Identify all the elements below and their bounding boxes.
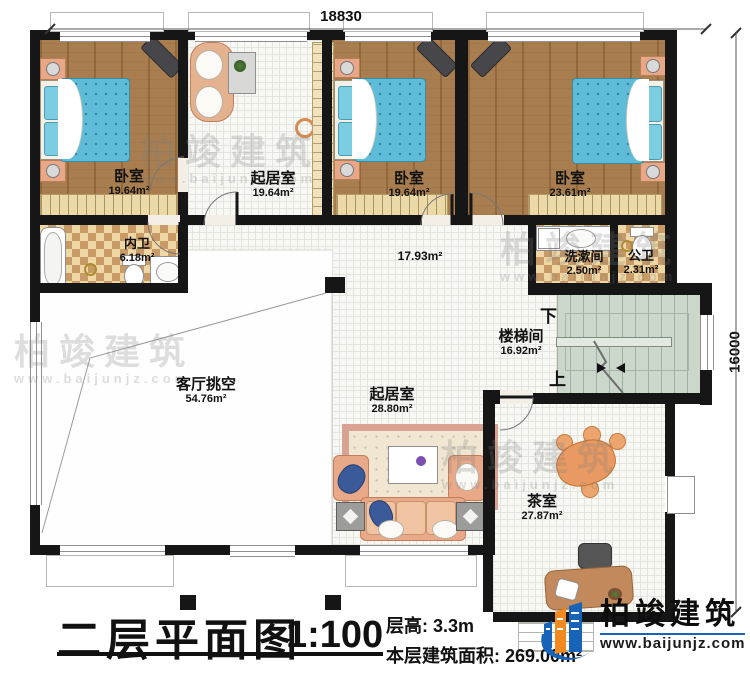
settee-cushion [195,86,223,118]
room-name: 卧室 [389,170,430,187]
room-name: 卧室 [550,170,591,187]
stair-handrail [556,337,672,347]
room-name: 洗漱间 [564,250,603,265]
room-area: 6.18m² [120,252,155,265]
room-area: 2.31m² [624,264,659,277]
door-opening [148,215,180,225]
room-name: 起居室 [250,170,295,187]
room-name: 茶室 [522,493,563,510]
room-name: 卧室 [109,168,150,185]
logo-bar-left [544,621,552,650]
wall-stair-top [528,283,712,295]
logo-bar-mid [555,608,566,654]
floor-height-label: 层高: 3.3m [386,612,474,638]
shower-head [84,263,97,276]
balcony-outline [345,555,477,587]
wall-tea-right-b [665,512,675,612]
wall-left [30,30,40,322]
room-area: 54.76m² [176,393,236,406]
wall-br2-br3 [455,40,468,215]
desk [228,52,256,94]
room-name: 公卫 [624,249,659,264]
room-area: 19.64m² [250,187,295,200]
coffee-table [388,446,438,484]
settee-cushion [195,50,223,80]
nightstand [40,58,66,80]
wall-tea-right-a [665,402,675,476]
brand-name: 柏竣建筑 [600,600,745,630]
coffee-table-decor [416,456,426,466]
door-opening [422,215,452,225]
wall-stair-bottom [533,393,712,404]
eave-outline [486,12,644,32]
room-label-tearoom: 茶室 27.87m² [522,493,563,523]
dimension-width: 18830 [320,8,362,25]
door-opening [472,215,504,225]
wall-tea-left [483,390,495,555]
stair-down-label: 下 [540,302,557,327]
wall-washroom-left [528,225,536,283]
room-label-washroom: 洗漱间 2.50m² [564,250,603,278]
wall-tea-left-low [483,555,493,612]
drawing-title: 二层平面图 [57,604,302,668]
column-void-corner [325,277,345,293]
nightstand [640,162,666,182]
wash-sink [566,229,596,248]
wall-br1-lr-low [178,192,188,215]
washing-machine [538,228,560,249]
room-area: 19.64m² [109,185,150,198]
wardrobe [528,194,662,217]
bathtub-basin [44,232,62,286]
wall-right-outer [665,30,677,292]
dimension-height: 16000 [727,331,744,373]
wall-lr-br2 [322,40,332,215]
desk-chair [578,543,612,569]
room-area: 19.64m² [389,187,430,200]
corridor-strip [185,225,332,250]
sofa-pillow [432,520,458,539]
side-table [456,502,485,531]
eave-outline [50,12,164,32]
wall-row1-bottom [30,215,677,225]
nightstand [40,160,66,182]
room-label-innerbath: 内卫 6.18m² [120,237,155,265]
room-name: 起居室 [369,386,414,403]
porch-column [325,595,341,610]
room-name: 客厅挑空 [176,376,236,393]
room-label-bedroom1: 卧室 19.64m² [109,168,150,198]
brand-website: www.baijunjz.com [600,633,745,652]
logo-bar-right [569,602,582,652]
room-label-sitting-bottom: 起居室 28.80m² [369,386,414,416]
wall-washroom-divider [610,225,618,283]
room-area: 17.93m² [398,250,443,264]
room-label-bedroom2: 卧室 19.64m² [389,170,430,200]
eave-outline [188,12,310,32]
floorplan-canvas: 柏竣建筑 www.baijunjz.com 柏竣建筑 www.baijunjz.… [0,0,750,675]
room-area: 28.80m² [369,403,414,416]
room-label-publicbath: 公卫 2.31m² [624,249,659,277]
room-area: 2.50m² [564,265,603,278]
wall-br1-lr [178,40,188,160]
room-label-sitting-top: 起居室 19.64m² [250,170,295,200]
room-area: 16.92m² [498,345,543,358]
wall-stair-right-a [700,283,712,315]
room-name: 内卫 [120,237,155,252]
door-opening [205,215,237,225]
drawing-scale: 1:100 [286,614,383,657]
dimension-tick [701,24,711,34]
balcony-outline [46,555,174,587]
brand-logo: 柏竣建筑 www.baijunjz.com [536,600,746,670]
window [700,315,714,370]
door-opening [500,390,533,404]
wall-innerbath-bottom [30,283,188,293]
dimension-tick [731,28,741,38]
side-table [336,502,365,531]
room-label-living-void: 客厅挑空 54.76m² [176,376,236,406]
bay-window [667,476,695,514]
title-underline [57,652,383,656]
bed-sheet [626,79,649,161]
nightstand [640,56,666,76]
room-label-corridor: 17.93m² [398,250,443,264]
room-area: 23.61m² [550,187,591,200]
nightstand [334,58,360,78]
wall-innerbath-right [178,225,188,285]
stair-up-label: 上 [549,365,566,390]
room-area: 27.87m² [522,510,563,523]
armchair-cushion [455,463,479,491]
sink [156,262,180,282]
sofa-pillow [378,520,404,539]
window [30,322,42,505]
window [230,545,295,557]
brand-logo-icon [536,600,594,669]
room-label-bedroom3: 卧室 23.61m² [550,170,591,200]
nightstand [334,160,360,180]
room-label-stairwell: 楼梯间 16.92m² [498,328,543,358]
desk-plant [234,60,246,72]
door-opening [178,158,188,192]
room-name: 楼梯间 [498,328,543,345]
